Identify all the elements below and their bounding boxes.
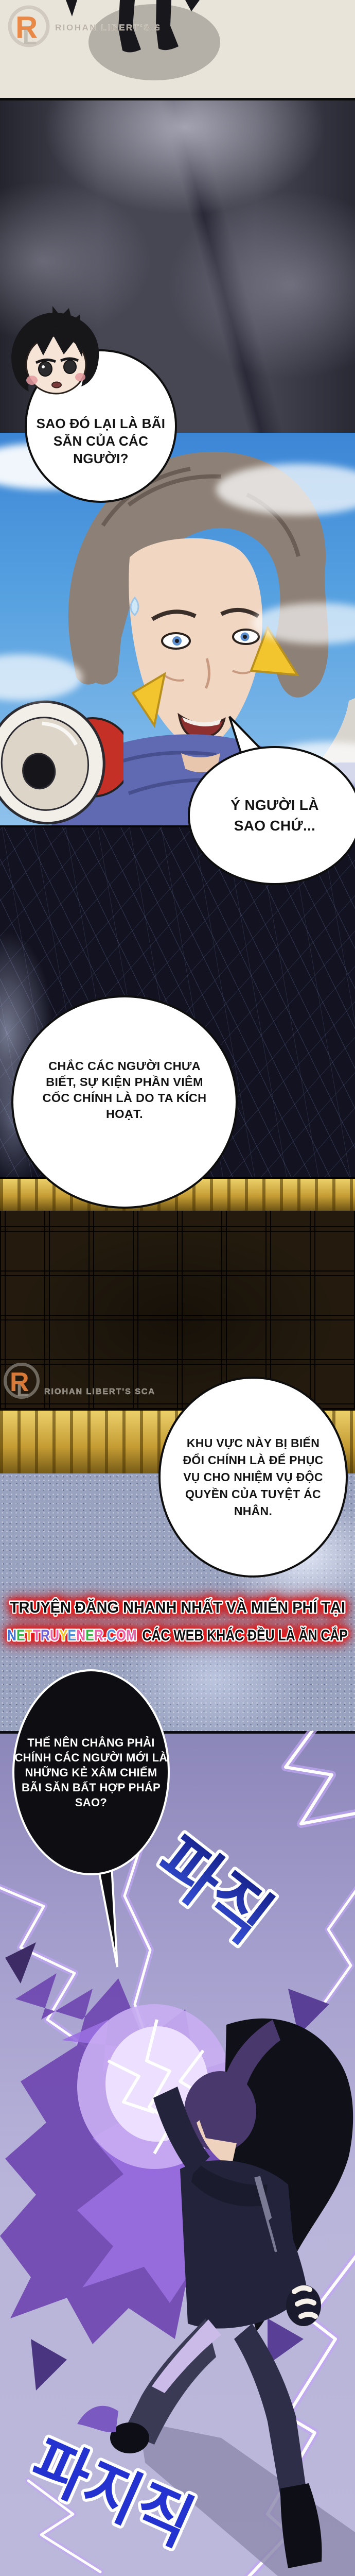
speech-bubble-2: Ý NGƯỜI LÀ SAO CHỨ... [188,746,355,885]
bolt-right [318,1888,355,2012]
ad-banner: TRUYỆN ĐĂNG NHANH NHẤT VÀ MIỄN PHÍ TẠI N… [0,1586,355,1653]
speech-bubble-4-text: KHU VỰC NÀY BỊ BIẾN ĐỔI CHÍNH LÀ ĐỂ PHỤC… [183,1435,323,1520]
megaphone [0,697,123,826]
banner-line-1: TRUYỆN ĐĂNG NHANH NHẤT VÀ MIỄN PHÍ TẠI [10,1598,345,1616]
watermark-text: RIOHAN LIBERT'S SCAN [44,1387,155,1396]
bolt-top-right [286,1731,355,1824]
manhwa-page: L R RIOHAN LIBERT'S SCAN SAO ĐÓ LẠI LÀ B… [0,0,355,2576]
woman-left-pupil [175,639,179,643]
back-boot [280,2483,322,2568]
boy-blush-left [26,376,38,385]
chibi-boy-figure [3,305,109,404]
glove [286,2285,321,2326]
banner-line-2: NETTRUYENER.COMCÁC WEB KHÁC ĐỀU LÀ ĂN CẮ… [7,1626,348,1644]
boy-eye-glint [42,365,45,368]
watermark-text: RIOHAN LIBERT'S SCAN [55,23,159,32]
boy-mouth [52,382,61,388]
boy-blush-right [75,373,85,381]
woman-right-pupil [243,635,247,639]
banner-line-2-rest: CÁC WEB KHÁC ĐỀU LÀ ĂN CẮP [142,1626,348,1644]
speech-bubble-4: KHU VỰC NÀY BỊ BIẾN ĐỔI CHÍNH LÀ ĐỂ PHỤC… [158,1377,348,1578]
scanlation-watermark: L R RIOHAN LIBERT'S SCAN [5,2,159,51]
scanlation-watermark: L R RIOHAN LIBERT'S SCAN [1,1360,155,1401]
shard [268,2318,304,2365]
sfx-crackle-mid: 파직 [143,1822,285,1957]
boy-hair-spikes [52,306,80,328]
boy-right-eye [64,360,76,374]
banner-site-name: NETTRUYENER.COM [7,1627,137,1644]
speech-bubble-5-text: THẾ NÊN CHẲNG PHẢI CHÍNH CÁC NGƯỜI MỚI L… [14,1735,167,1810]
speech-bubble-3-text: CHẮC CÁC NGƯỜI CHƯA BIẾT, SỰ KIỆN PHẦN V… [43,1058,207,1146]
shard [31,2339,67,2391]
speech-bubble-5: THẾ NÊN CHẲNG PHẢI CHÍNH CÁC NGƯỜI MỚI L… [12,1669,170,1875]
speech-bubble-3: CHẮC CÁC NGƯỜI CHƯA BIẾT, SỰ KIỆN PHẦN V… [11,995,238,1209]
boy-left-eye [39,362,52,376]
logo-letter-main: R [15,10,38,45]
logo-letter-main: R [10,1367,29,1397]
speech-bubble-2-text: Ý NGƯỜI LÀ SAO CHỨ... [230,795,318,836]
purple-wisp [77,2406,118,2432]
